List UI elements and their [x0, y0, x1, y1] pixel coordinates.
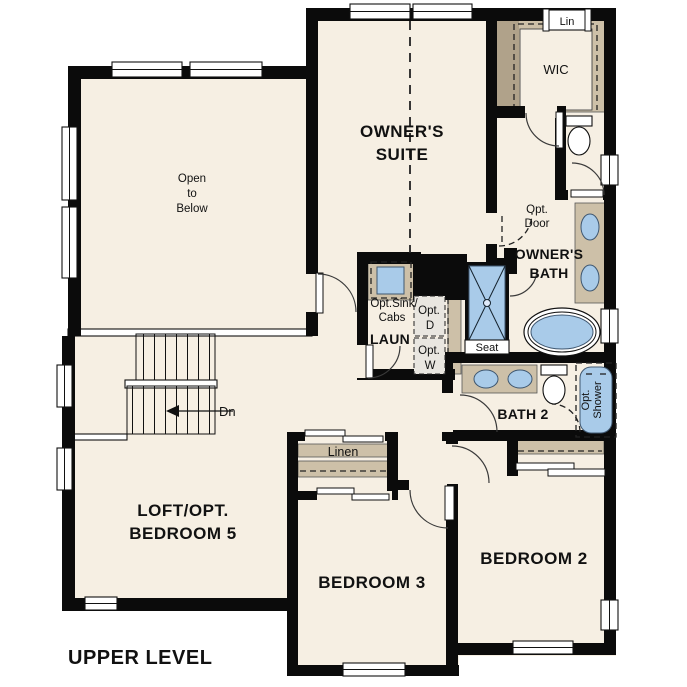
window [601, 155, 618, 185]
linen-bypass-door [343, 436, 383, 442]
sink [581, 265, 599, 291]
window [601, 309, 618, 343]
bath2-label: BATH 2 [497, 406, 548, 422]
window [57, 448, 72, 490]
opt-door-label: Opt. [526, 204, 548, 216]
stair-upper-flight [136, 334, 215, 382]
toilet [566, 116, 592, 155]
owners-suite-label: SUITE [376, 145, 429, 164]
bedroom2-label: BEDROOM 2 [480, 549, 587, 568]
sink [508, 370, 532, 388]
opt-shower-label: Shower [592, 381, 604, 419]
owners-bath-label: OWNER'S [515, 246, 583, 262]
page-title: UPPER LEVEL [68, 647, 212, 669]
sink [581, 214, 599, 240]
open-to-below-floor [68, 66, 318, 336]
owners-bath-label: BATH [529, 265, 568, 281]
open-to-below-label: Open [178, 173, 206, 185]
laundry-label: LAUN [370, 331, 410, 347]
linen-bypass-door [305, 430, 345, 436]
window [413, 4, 472, 19]
sink [474, 370, 498, 388]
opt-washer-label: W [425, 360, 436, 372]
laundry-door-leaf [366, 345, 373, 378]
bedroom2-closet-door [548, 469, 605, 476]
loft-label: LOFT/OPT. [137, 501, 228, 520]
opt-washer-label: Opt. [418, 345, 440, 357]
window [350, 4, 410, 19]
opt-dryer-label: Opt. [418, 305, 440, 317]
opt-sink-label: Opt.Sink/ [370, 298, 418, 310]
wic-door-leaf [556, 112, 563, 148]
loft-hall-divider [68, 434, 127, 440]
wic-shelving-dark [497, 21, 519, 110]
window [62, 127, 77, 200]
bedroom3-label: BEDROOM 3 [318, 573, 425, 592]
linen-label: Linen [328, 445, 359, 459]
lin-label: Lin [560, 16, 575, 28]
hall-floor [215, 330, 310, 440]
window [85, 597, 117, 610]
toilet [541, 365, 567, 404]
toilet-room-door-leaf [571, 190, 603, 197]
window [62, 207, 77, 278]
window [513, 641, 573, 654]
bedroom2-door-leaf [445, 486, 454, 520]
stairs-down-label: Dn [219, 404, 236, 419]
owners-suite-door-leaf [316, 273, 323, 313]
bedroom3-closet-door [317, 488, 354, 494]
seat-label: Seat [476, 342, 499, 354]
opt-dryer-label: D [426, 320, 434, 332]
window [601, 600, 618, 630]
wic-label: WIC [543, 62, 568, 77]
opt-door-label: Door [525, 218, 550, 230]
floor-plan-drawing: OWNER'S SUITE Open to Below WIC Lin OWNE… [0, 0, 687, 687]
opt-sink-label: Cabs [379, 312, 406, 324]
window [57, 365, 72, 407]
window [112, 62, 182, 77]
open-to-below-label: Below [176, 203, 208, 215]
window [190, 62, 262, 77]
linen-rod-shelf [298, 461, 388, 477]
open-to-below-label: to [187, 188, 197, 200]
bedroom2-closet-shelf [516, 440, 604, 454]
bedroom3-closet-door [352, 494, 389, 500]
bathtub [524, 308, 600, 356]
shower [465, 262, 509, 354]
loft-label: BEDROOM 5 [129, 524, 236, 543]
opt-shower-label: Opt. [580, 390, 592, 411]
floor-plan-page: OWNER'S SUITE Open to Below WIC Lin OWNE… [0, 0, 687, 687]
chase [413, 254, 467, 300]
owners-suite-label: OWNER'S [360, 122, 444, 141]
window [343, 663, 405, 676]
